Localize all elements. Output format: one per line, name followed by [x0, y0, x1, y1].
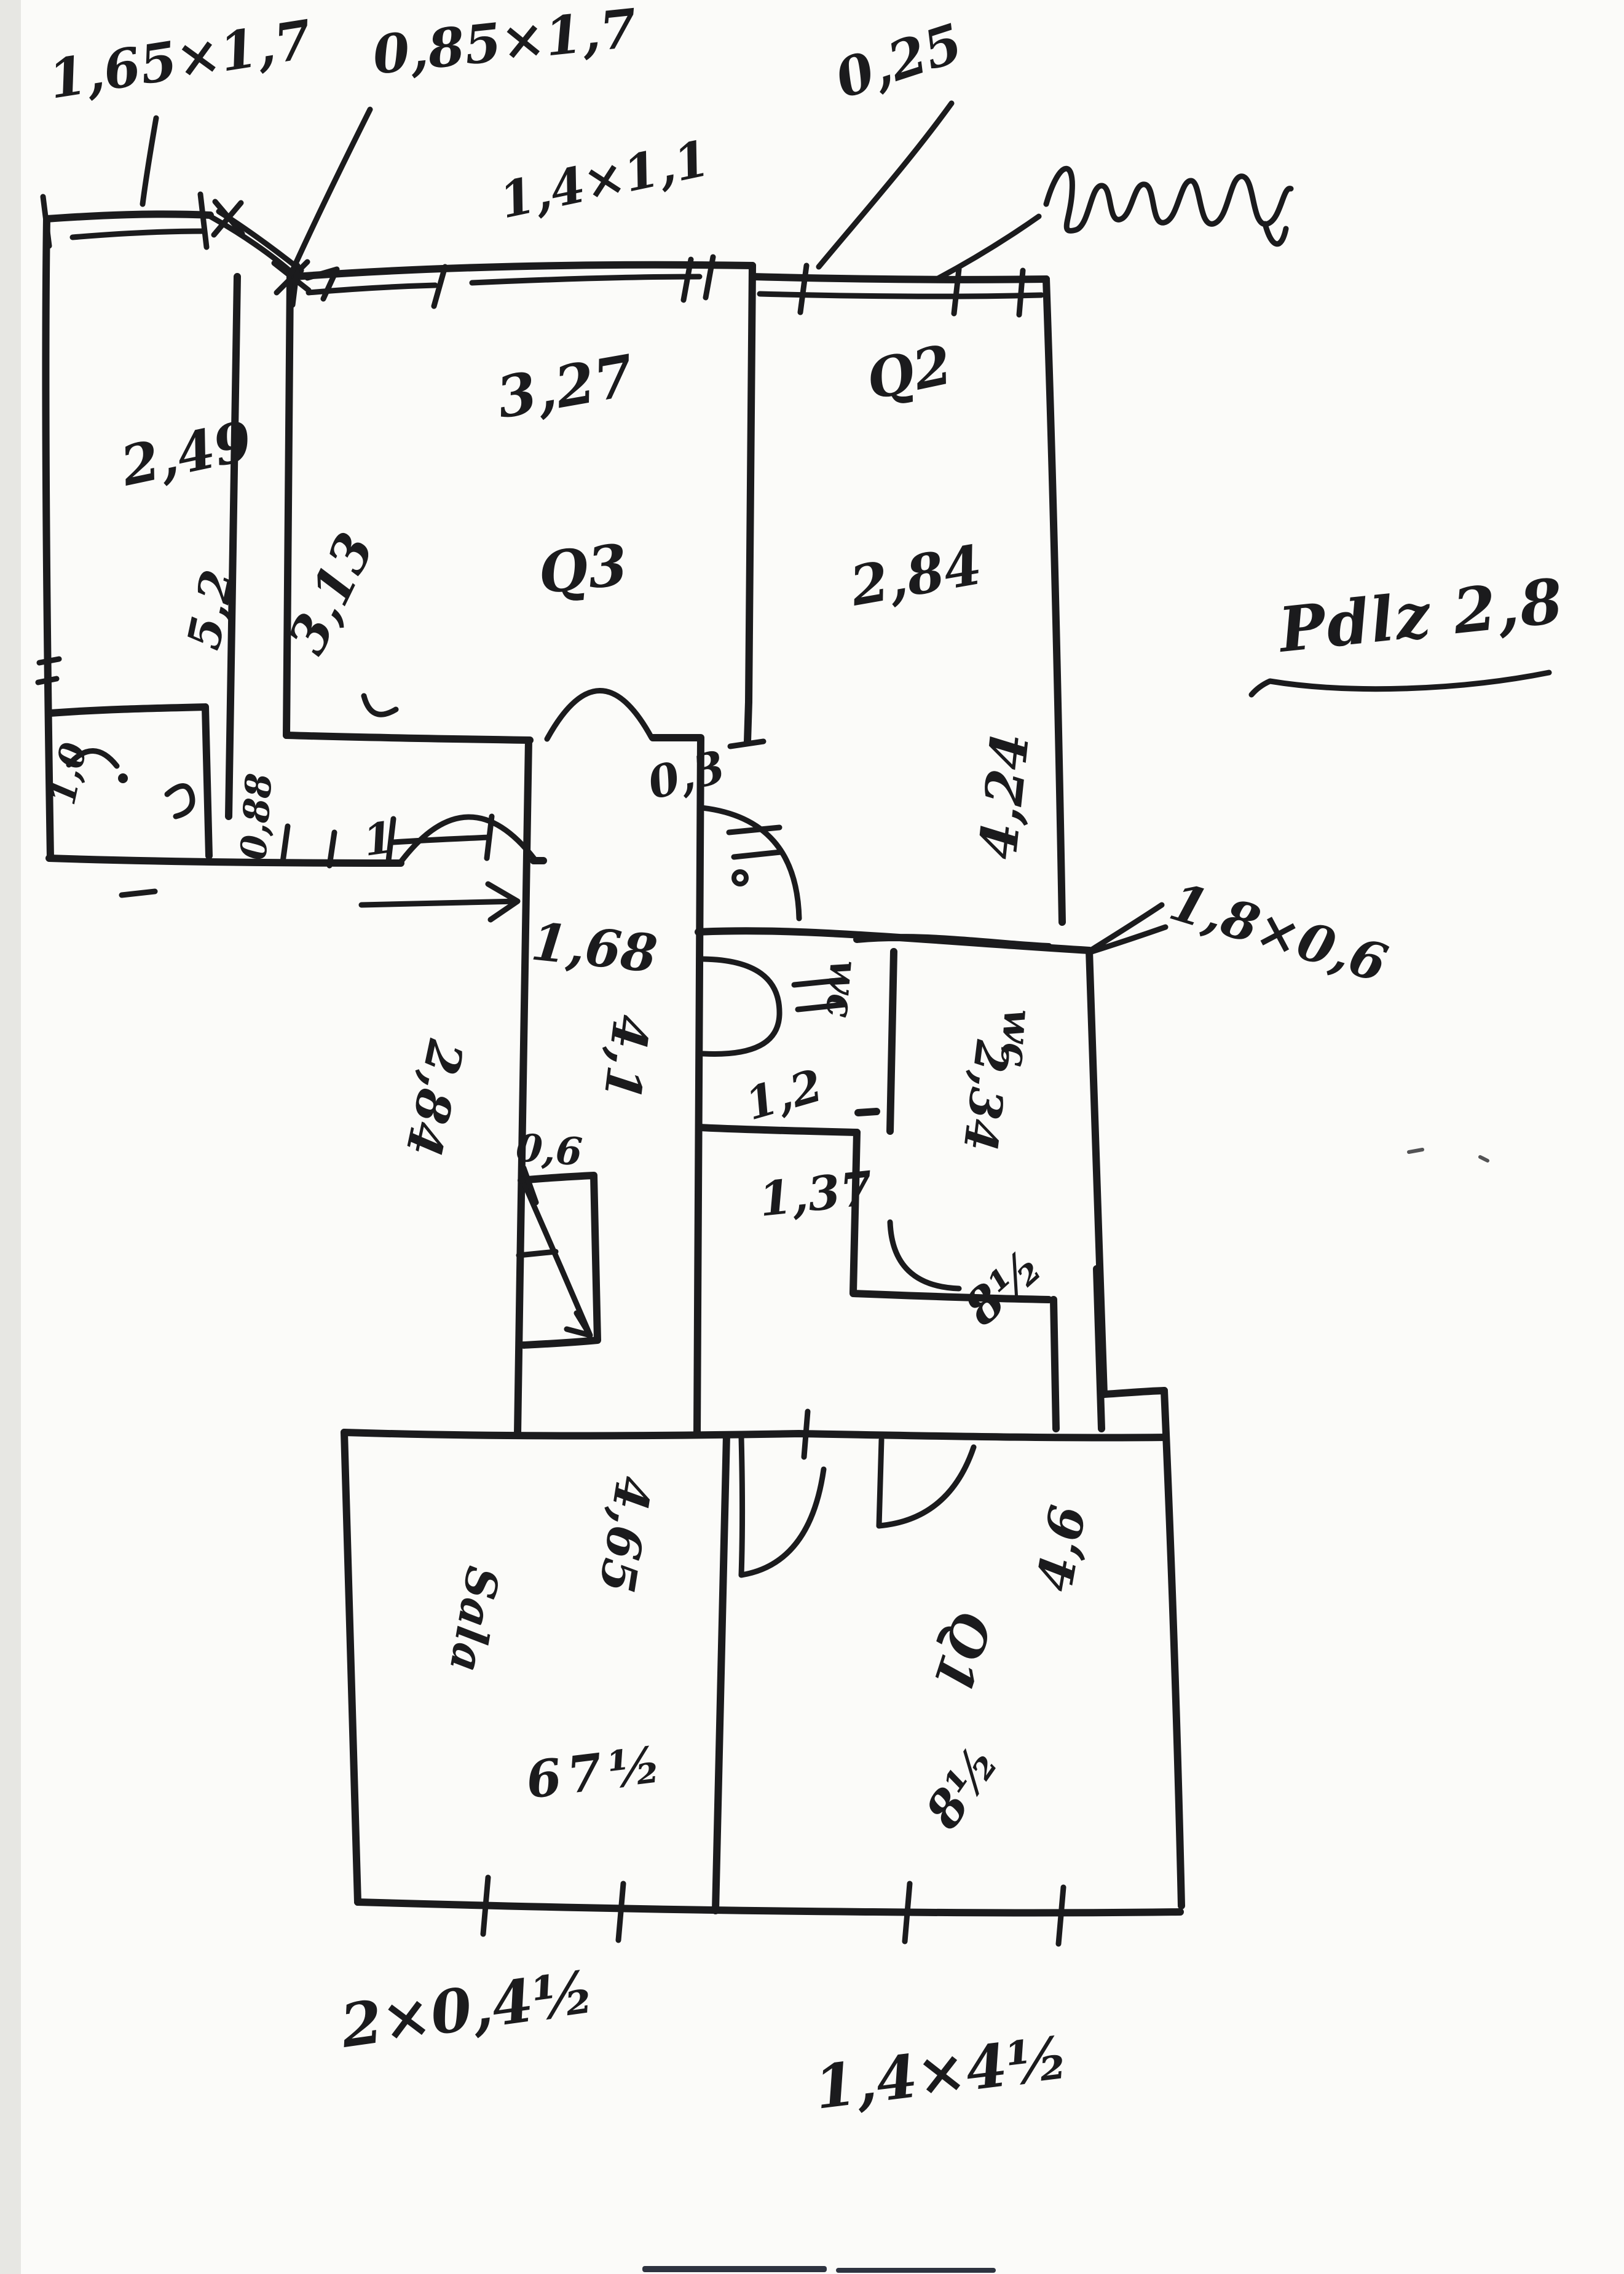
label-room1-name: Q1 — [921, 1605, 1004, 1700]
door-arc-sala — [741, 1469, 824, 1575]
label-hall-width: 1,68 — [529, 910, 660, 984]
wall-mid-long — [698, 931, 1089, 950]
label-sala-dim: 67½ — [523, 1735, 671, 1810]
wall-q2-left-stub — [747, 702, 749, 741]
room-q3-walls — [286, 257, 752, 740]
label-room2-width: 2,84 — [845, 532, 987, 618]
o-mark-q2-door — [734, 872, 746, 884]
tick-03 — [730, 741, 763, 746]
label-window-a: 1,65×1,7 — [44, 9, 316, 111]
lower-rooms-walls — [344, 1411, 1180, 1944]
passage-lines — [1054, 1269, 1102, 1429]
wall-wc1-bottom — [700, 1127, 857, 1132]
leader-win-a — [143, 118, 156, 204]
leader-dim-025 — [819, 103, 952, 267]
scribble-word-illegible — [1046, 168, 1291, 244]
label-dim-03: 0,3 — [643, 740, 730, 810]
label-room1-height: 4,6 — [1025, 1501, 1097, 1595]
label-wc1-width: 1,2 — [739, 1059, 828, 1130]
label-room3-width: 3,27 — [492, 342, 639, 431]
label-sala-width: 4,65 — [588, 1472, 662, 1597]
label-room3-name: Q3 — [535, 531, 631, 606]
label-wc2-dim: 8½ — [953, 1239, 1053, 1337]
wall-q2-right — [1046, 279, 1062, 922]
label-bottom-right: 1,4×4½ — [811, 2023, 1072, 2123]
wall-divider-lower — [715, 1435, 727, 1911]
closet-dot — [118, 773, 128, 783]
door-leaf-sala — [741, 1437, 743, 1575]
dimension-labels: 1,65×1,7 0,85×1,7 1,4×1,1 0,25 3,27 Q3 3… — [41, 0, 1567, 2123]
wall-q3-bottom — [286, 735, 700, 740]
wall-q2-top — [752, 277, 1046, 280]
label-room-a-height: 5,2 — [177, 566, 245, 654]
label-room2-height: 4,24 — [967, 730, 1041, 862]
wall-wc-divider — [890, 952, 894, 1131]
label-room1-dim: 8½ — [913, 1735, 1010, 1839]
label-room2-name: Q2 — [861, 332, 958, 412]
tick-main-wall — [804, 1411, 808, 1457]
door-dim-line — [393, 837, 489, 842]
wall-q3-right — [749, 266, 752, 702]
scan-edge-left — [0, 0, 21, 2274]
underline-note-right — [1252, 673, 1549, 695]
wall-outer-jog — [1104, 1391, 1164, 1394]
door-arc-q3-hall — [547, 690, 652, 739]
door-leaf-q1 — [879, 1440, 881, 1526]
leader-win-b — [291, 109, 370, 273]
wall-room-a-top — [47, 214, 210, 219]
label-dim-06: 0,6 — [514, 1125, 584, 1174]
scan-mark-bottom-2 — [836, 2268, 996, 2273]
door-arc-q2 — [702, 808, 799, 918]
leaders-wardrobe — [1090, 905, 1165, 952]
label-wardrobe: 1,8×0,6 — [1163, 871, 1394, 994]
label-wc1-name: wc — [816, 958, 867, 1020]
label-sala-name: Sala — [440, 1563, 510, 1676]
faint-marks-right — [1409, 1150, 1488, 1161]
wall-main-horizontal — [344, 1432, 1165, 1438]
wall-sala-left — [344, 1432, 358, 1902]
label-room3-height: 3,13 — [276, 523, 386, 663]
scanned-sketch-page: 1,65×1,7 0,85×1,7 1,4×1,1 0,25 3,27 Q3 3… — [0, 0, 1624, 2274]
scan-mark-bottom-1 — [642, 2266, 827, 2272]
window-ticks-q2 — [800, 266, 1023, 315]
label-window-b: 0,85×1,7 — [370, 0, 640, 87]
wall-hall-right — [697, 738, 701, 1434]
floorplan-sketch: 1,65×1,7 0,85×1,7 1,4×1,1 0,25 3,27 Q3 3… — [0, 0, 1624, 2274]
window-room-a-inner — [73, 231, 204, 237]
label-wc2-height: 2,34 — [953, 1037, 1019, 1154]
window-q3-inner — [309, 277, 700, 293]
hook-q3-bottom — [364, 696, 396, 714]
junction-diagonal — [210, 211, 301, 275]
door-arc-q1 — [879, 1447, 974, 1526]
shaft-diagonal — [525, 1185, 590, 1335]
label-note-right: Pdlz 2,8 — [1274, 564, 1567, 666]
wall-bottom — [358, 1902, 1180, 1913]
entry-arrow — [361, 884, 518, 920]
label-bottom-left: 2×0,4½ — [336, 1957, 598, 2061]
door-arc-wc2 — [890, 1222, 959, 1289]
label-dim-025: 0,25 — [828, 12, 969, 111]
label-window-c: 1,4×1,1 — [494, 129, 714, 230]
label-hall-left: 2,84 — [395, 1035, 474, 1161]
door-arc-wc1 — [703, 959, 779, 1054]
wall-room-a-right — [229, 277, 290, 816]
label-hall-height: 4,1 — [593, 1012, 660, 1104]
closet-curl — [167, 786, 192, 816]
wall-room-a-bottom — [49, 858, 543, 863]
label-dim-088: 0,88 — [232, 772, 280, 861]
wall-outer-right-lower — [1164, 1391, 1181, 1906]
